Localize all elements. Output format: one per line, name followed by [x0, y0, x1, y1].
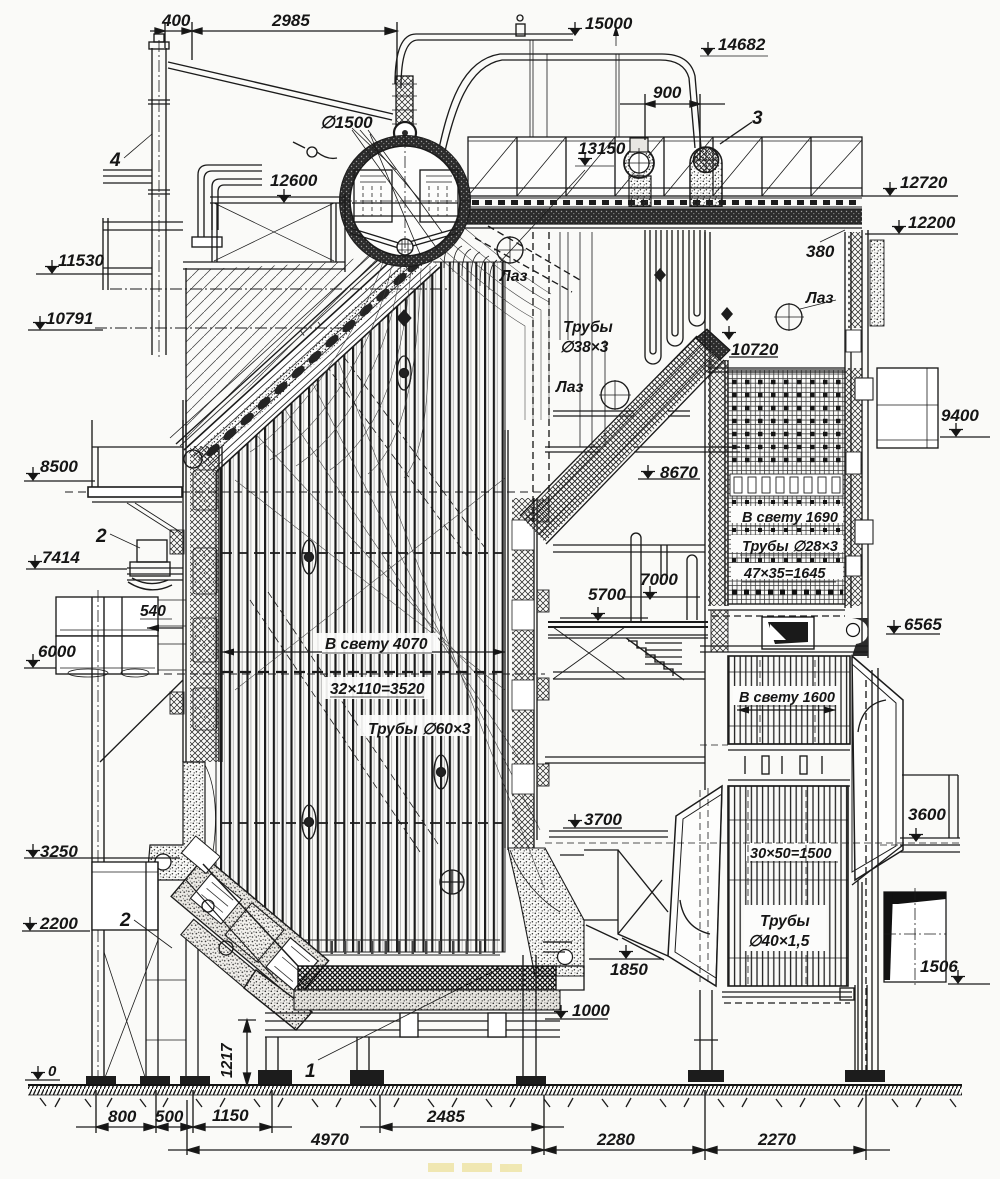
svg-text:500: 500	[155, 1107, 184, 1126]
svg-text:1150: 1150	[212, 1106, 249, 1125]
svg-text:Трубы ∅28×3: Трубы ∅28×3	[742, 539, 838, 555]
svg-text:2: 2	[119, 910, 131, 931]
svg-text:∅40×1,5: ∅40×1,5	[748, 933, 810, 950]
svg-text:32×110=3520: 32×110=3520	[330, 681, 425, 698]
svg-text:900: 900	[653, 83, 682, 102]
svg-text:10791: 10791	[46, 309, 93, 328]
svg-text:∅38×3: ∅38×3	[560, 339, 609, 356]
svg-text:6565: 6565	[904, 615, 942, 634]
svg-text:5700: 5700	[588, 585, 626, 604]
svg-text:2200: 2200	[39, 914, 78, 933]
svg-text:В свету 1600: В свету 1600	[739, 690, 835, 706]
svg-text:380: 380	[806, 242, 835, 261]
svg-text:7414: 7414	[42, 548, 80, 567]
svg-text:1217: 1217	[219, 1042, 236, 1078]
svg-text:9400: 9400	[941, 406, 979, 425]
svg-text:3700: 3700	[584, 810, 622, 829]
svg-text:800: 800	[108, 1107, 137, 1126]
svg-text:2270: 2270	[757, 1130, 796, 1149]
svg-text:12600: 12600	[270, 171, 318, 190]
svg-text:Лаз: Лаз	[555, 379, 583, 396]
svg-text:8500: 8500	[40, 457, 78, 476]
svg-text:3: 3	[752, 108, 763, 129]
svg-text:12720: 12720	[900, 173, 948, 192]
svg-text:13150: 13150	[578, 139, 626, 158]
svg-text:11530: 11530	[58, 251, 105, 270]
svg-text:1506: 1506	[920, 957, 958, 976]
svg-text:В свету 4070: В свету 4070	[325, 636, 428, 653]
svg-text:0: 0	[48, 1063, 57, 1080]
svg-text:2: 2	[95, 526, 107, 547]
svg-text:Трубы: Трубы	[563, 319, 613, 336]
svg-text:400: 400	[161, 11, 191, 30]
svg-text:2485: 2485	[426, 1107, 465, 1126]
svg-text:1850: 1850	[610, 960, 648, 979]
svg-text:15000: 15000	[585, 14, 633, 33]
svg-text:3600: 3600	[908, 805, 946, 824]
svg-text:10720: 10720	[731, 340, 779, 359]
svg-text:12200: 12200	[908, 213, 956, 232]
svg-text:4970: 4970	[310, 1130, 349, 1149]
svg-text:В свету 1690: В свету 1690	[742, 510, 838, 526]
svg-text:Трубы: Трубы	[760, 913, 810, 930]
svg-text:47×35=1645: 47×35=1645	[743, 566, 826, 582]
svg-text:14682: 14682	[718, 35, 766, 54]
svg-text:2985: 2985	[271, 11, 310, 30]
svg-text:540: 540	[140, 603, 166, 620]
svg-text:Лаз: Лаз	[805, 290, 833, 307]
svg-text:∅1500: ∅1500	[320, 113, 373, 132]
svg-text:1: 1	[305, 1061, 316, 1082]
svg-text:6000: 6000	[38, 642, 76, 661]
svg-text:2280: 2280	[596, 1130, 635, 1149]
svg-text:4: 4	[109, 150, 121, 171]
svg-text:7000: 7000	[640, 570, 678, 589]
svg-text:30×50=1500: 30×50=1500	[750, 846, 831, 862]
svg-text:1000: 1000	[572, 1001, 610, 1020]
svg-text:Лаз: Лаз	[499, 268, 527, 285]
svg-text:Трубы ∅60×3: Трубы ∅60×3	[368, 721, 471, 738]
